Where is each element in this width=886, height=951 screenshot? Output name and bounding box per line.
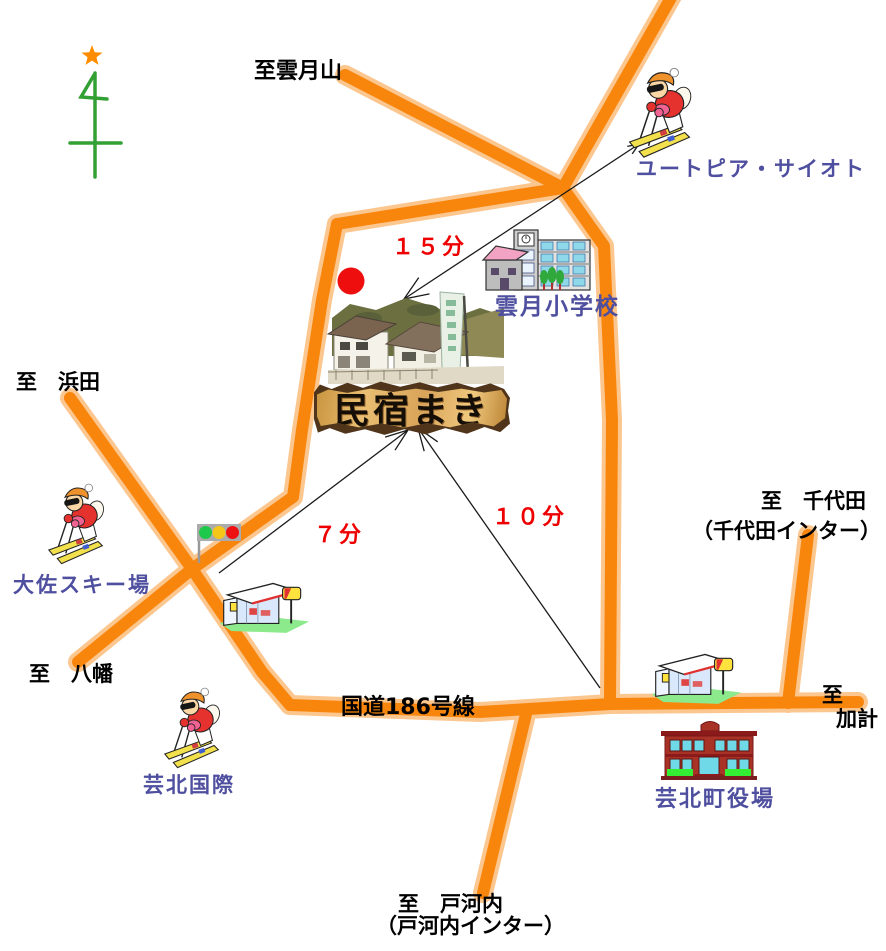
road-to-hamada (70, 398, 290, 705)
label-geihoku-kokusai: 芸北国際 (143, 774, 235, 797)
label-osa-ski: 大佐スキー場 (13, 574, 151, 597)
label-to-hamada: 至 浜田 (16, 371, 100, 394)
minshuku-sign-inner: 民宿まき (317, 387, 507, 429)
north-arrow-icon (70, 73, 121, 177)
convenience-store-icon (220, 584, 309, 633)
arrow-10min (418, 428, 600, 688)
label-utopia-saioto: ユートピア・サイオト (636, 158, 866, 181)
minshuku-sign-banner: 民宿まき (314, 380, 510, 436)
label-time-15min: １５分 (392, 236, 467, 260)
road-to-unzukiyama (345, 75, 563, 188)
skier-icon (630, 68, 694, 157)
skier-icon (165, 688, 222, 767)
label-geihoku-town-hall: 芸北町役場 (655, 788, 775, 812)
access-map: 至雲月山 ユートピア・サイオト １５分 雲月小学校 至 浜田 至 千代田 （千代… (0, 0, 886, 951)
road-loop-top (337, 188, 563, 224)
label-to-kake-line1: 至 (822, 684, 843, 707)
label-chiyoda-inter: （千代田インター） (692, 520, 881, 543)
label-unzuki-elementary: 雲月小学校 (495, 295, 620, 320)
label-to-unzukiyama: 至雲月山 (254, 60, 342, 84)
label-to-kake-line2: 加計 (836, 708, 878, 731)
minshuku-photo (328, 292, 504, 384)
label-to-togouchi: 至 戸河内 (398, 893, 503, 916)
town-hall-icon (661, 722, 757, 781)
arrow-7min (219, 430, 408, 573)
star-icon (82, 45, 103, 65)
label-togouchi-inter: （戸河内インター） (376, 915, 565, 938)
minshuku-name: 民宿まき (334, 382, 490, 434)
label-time-10min: １０分 (492, 506, 567, 530)
road-to-togouchi (483, 710, 527, 893)
label-time-7min: ７分 (314, 524, 364, 548)
label-to-chiyoda: 至 千代田 (761, 490, 866, 513)
label-route186: 国道186号線 (341, 696, 475, 720)
red-location-dot (338, 268, 365, 295)
label-to-yawata: 至 八幡 (29, 663, 113, 686)
school-building-icon (483, 230, 590, 290)
convenience-store-icon (652, 655, 741, 704)
skier-icon (49, 484, 106, 563)
